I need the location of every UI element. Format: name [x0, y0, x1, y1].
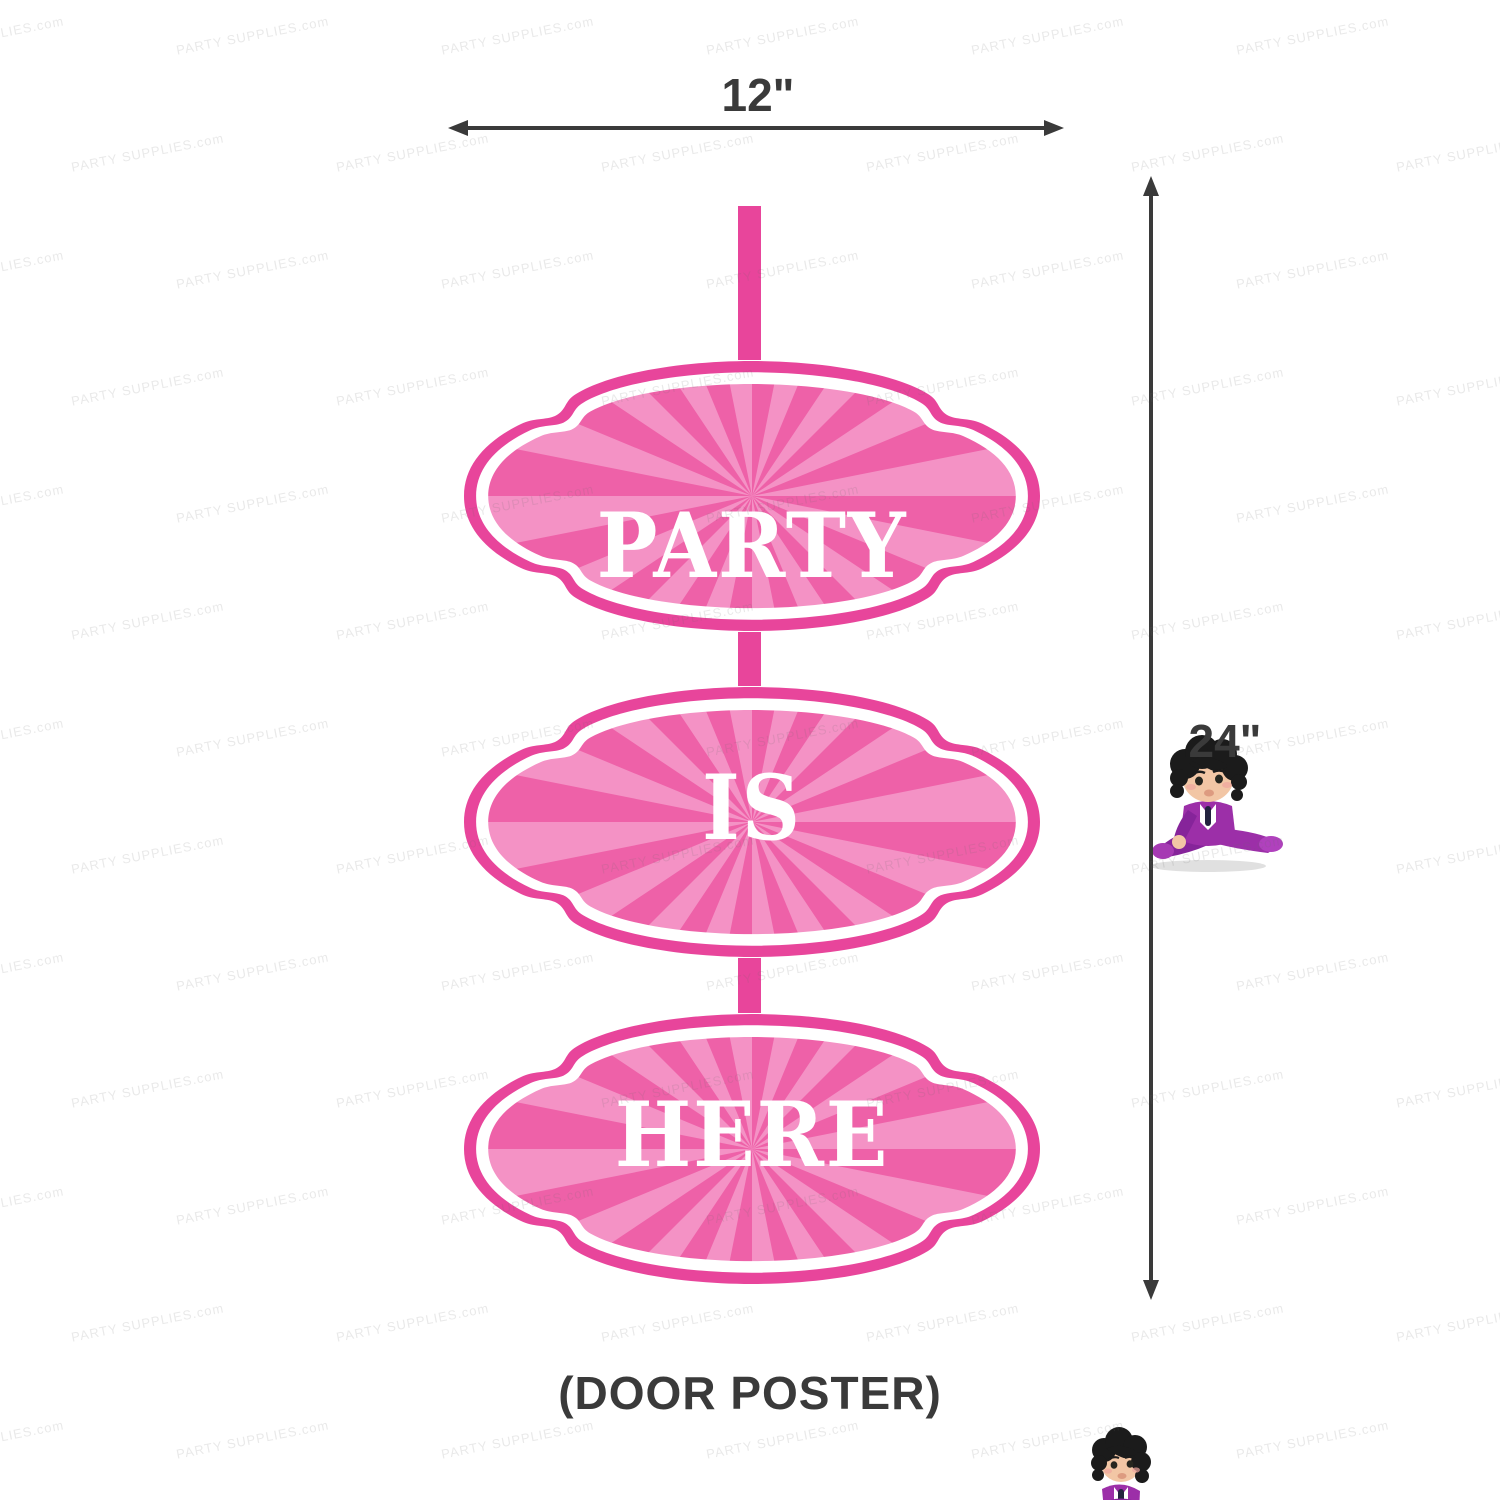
watermark-text: PARTY SUPPLIES.com — [705, 247, 860, 291]
watermark-text: PARTY SUPPLIES.com — [1395, 1066, 1500, 1110]
watermark-text: PARTY SUPPLIES.com — [1235, 1417, 1390, 1461]
boss-baby-girl-leaning-illustration — [1072, 1419, 1172, 1500]
watermark-text: PARTY SUPPLIES.com — [440, 13, 595, 57]
watermark-text: PARTY SUPPLIES.com — [970, 13, 1125, 57]
plaque-party: PARTY — [462, 360, 1042, 632]
product-caption: (DOOR POSTER) — [0, 1366, 1500, 1420]
watermark-text: PARTY SUPPLIES.com — [70, 1300, 225, 1344]
watermark-text: PARTY SUPPLIES.com — [70, 364, 225, 408]
plaque-word: HERE — [491, 1090, 1013, 1180]
watermark-text: PARTY SUPPLIES.com — [0, 1417, 65, 1461]
watermark-text: PARTY SUPPLIES.com — [0, 715, 65, 759]
watermark-text: PARTY SUPPLIES.com — [335, 1300, 490, 1344]
height-dimension-label: 24" — [1165, 714, 1285, 768]
watermark-text: PARTY SUPPLIES.com — [1235, 247, 1390, 291]
watermark-text: PARTY SUPPLIES.com — [175, 1417, 330, 1461]
watermark-text: PARTY SUPPLIES.com — [705, 13, 860, 57]
watermark-text: PARTY SUPPLIES.com — [1395, 832, 1500, 876]
watermark-text: PARTY SUPPLIES.com — [175, 13, 330, 57]
watermark-text: PARTY SUPPLIES.com — [1235, 1183, 1390, 1227]
watermark-text: PARTY SUPPLIES.com — [440, 247, 595, 291]
watermark-text: PARTY SUPPLIES.com — [70, 832, 225, 876]
watermark-text: PARTY SUPPLIES.com — [0, 949, 65, 993]
plaque-here: HERE — [462, 1013, 1042, 1285]
plaque-word: PARTY — [491, 501, 1013, 591]
watermark-text: PARTY SUPPLIES.com — [705, 1417, 860, 1461]
watermark-text: PARTY SUPPLIES.com — [70, 1066, 225, 1110]
watermark-text: PARTY SUPPLIES.com — [1395, 364, 1500, 408]
watermark-text: PARTY SUPPLIES.com — [1235, 13, 1390, 57]
door-poster-mockup: 12" 24" PARTY — [0, 0, 1500, 1500]
watermark-text: PARTY SUPPLIES.com — [1130, 1300, 1285, 1344]
watermark-text: PARTY SUPPLIES.com — [175, 949, 330, 993]
plaque-word: IS — [491, 763, 1013, 853]
height-dimension-arrow — [1140, 176, 1162, 1300]
watermark-text: PARTY SUPPLIES.com — [0, 1183, 65, 1227]
watermark-text: PARTY SUPPLIES.com — [1130, 130, 1285, 174]
watermark-text: PARTY SUPPLIES.com — [440, 1417, 595, 1461]
watermark-text: PARTY SUPPLIES.com — [1395, 598, 1500, 642]
watermark-text: PARTY SUPPLIES.com — [175, 1183, 330, 1227]
watermark-text: PARTY SUPPLIES.com — [1395, 130, 1500, 174]
width-dimension-arrow — [448, 117, 1064, 139]
plaque-is: IS — [462, 686, 1042, 958]
watermark-text: PARTY SUPPLIES.com — [0, 481, 65, 525]
width-dimension-label: 12" — [450, 68, 1066, 122]
watermark-text: PARTY SUPPLIES.com — [0, 13, 65, 57]
watermark-text: PARTY SUPPLIES.com — [175, 481, 330, 525]
watermark-text: PARTY SUPPLIES.com — [865, 1300, 1020, 1344]
watermark-text: PARTY SUPPLIES.com — [600, 1300, 755, 1344]
watermark-text: PARTY SUPPLIES.com — [970, 247, 1125, 291]
watermark-text: PARTY SUPPLIES.com — [1235, 949, 1390, 993]
watermark-text: PARTY SUPPLIES.com — [175, 247, 330, 291]
watermark-text: PARTY SUPPLIES.com — [70, 130, 225, 174]
watermark-text: PARTY SUPPLIES.com — [70, 598, 225, 642]
watermark-text: PARTY SUPPLIES.com — [0, 247, 65, 291]
watermark-text: PARTY SUPPLIES.com — [175, 715, 330, 759]
watermark-text: PARTY SUPPLIES.com — [1235, 481, 1390, 525]
watermark-text: PARTY SUPPLIES.com — [1395, 1300, 1500, 1344]
